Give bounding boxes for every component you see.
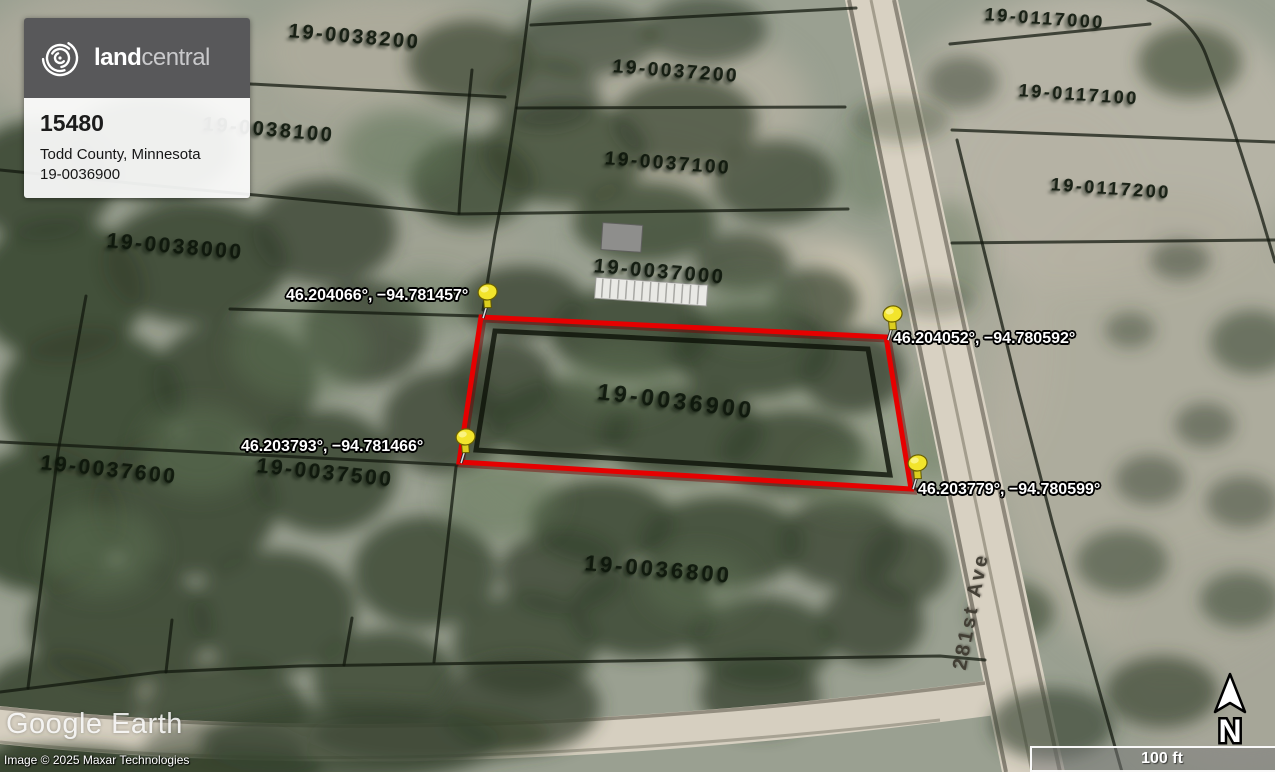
pin-coordinate-label: 46.204052°, −94.780592° [893,330,1075,348]
pin-coordinate-label: 46.203779°, −94.780599° [918,481,1100,499]
google-earth-viewport[interactable]: 19-0038200 19-0037200 19-0117000 19-0038… [0,0,1275,772]
pin-coordinate-label: 46.204066°, −94.781457° [286,287,468,305]
landcentral-logo-icon [39,37,81,79]
listing-card-body: 15480 Todd County, Minnesota 19-0036900 [24,98,250,198]
north-arrow-icon: N [1206,670,1254,748]
listing-card-header: landcentral [24,18,250,98]
map-pin-southwest[interactable] [453,426,479,464]
north-label: N [1218,713,1241,748]
map-pin-northwest[interactable] [475,281,501,319]
gray-building [601,223,643,253]
listing-id: 15480 [40,110,234,137]
imagery-copyright: Image © 2025 Maxar Technologies [4,753,189,767]
pin-coordinate-label: 46.203793°, −94.781466° [241,438,423,456]
listing-parcel-id: 19-0036900 [40,165,234,185]
brand-wordmark: landcentral [94,44,210,72]
scale-label: 100 ft [1141,750,1183,767]
brand-word-land: land [94,44,141,71]
brand-word-central: central [141,44,210,71]
listing-location: Todd County, Minnesota [40,145,234,165]
listing-card: landcentral 15480 Todd County, Minnesota… [24,18,250,198]
google-earth-watermark: Google Earth [6,708,183,741]
scale-bar: 100 ft [1030,746,1275,772]
